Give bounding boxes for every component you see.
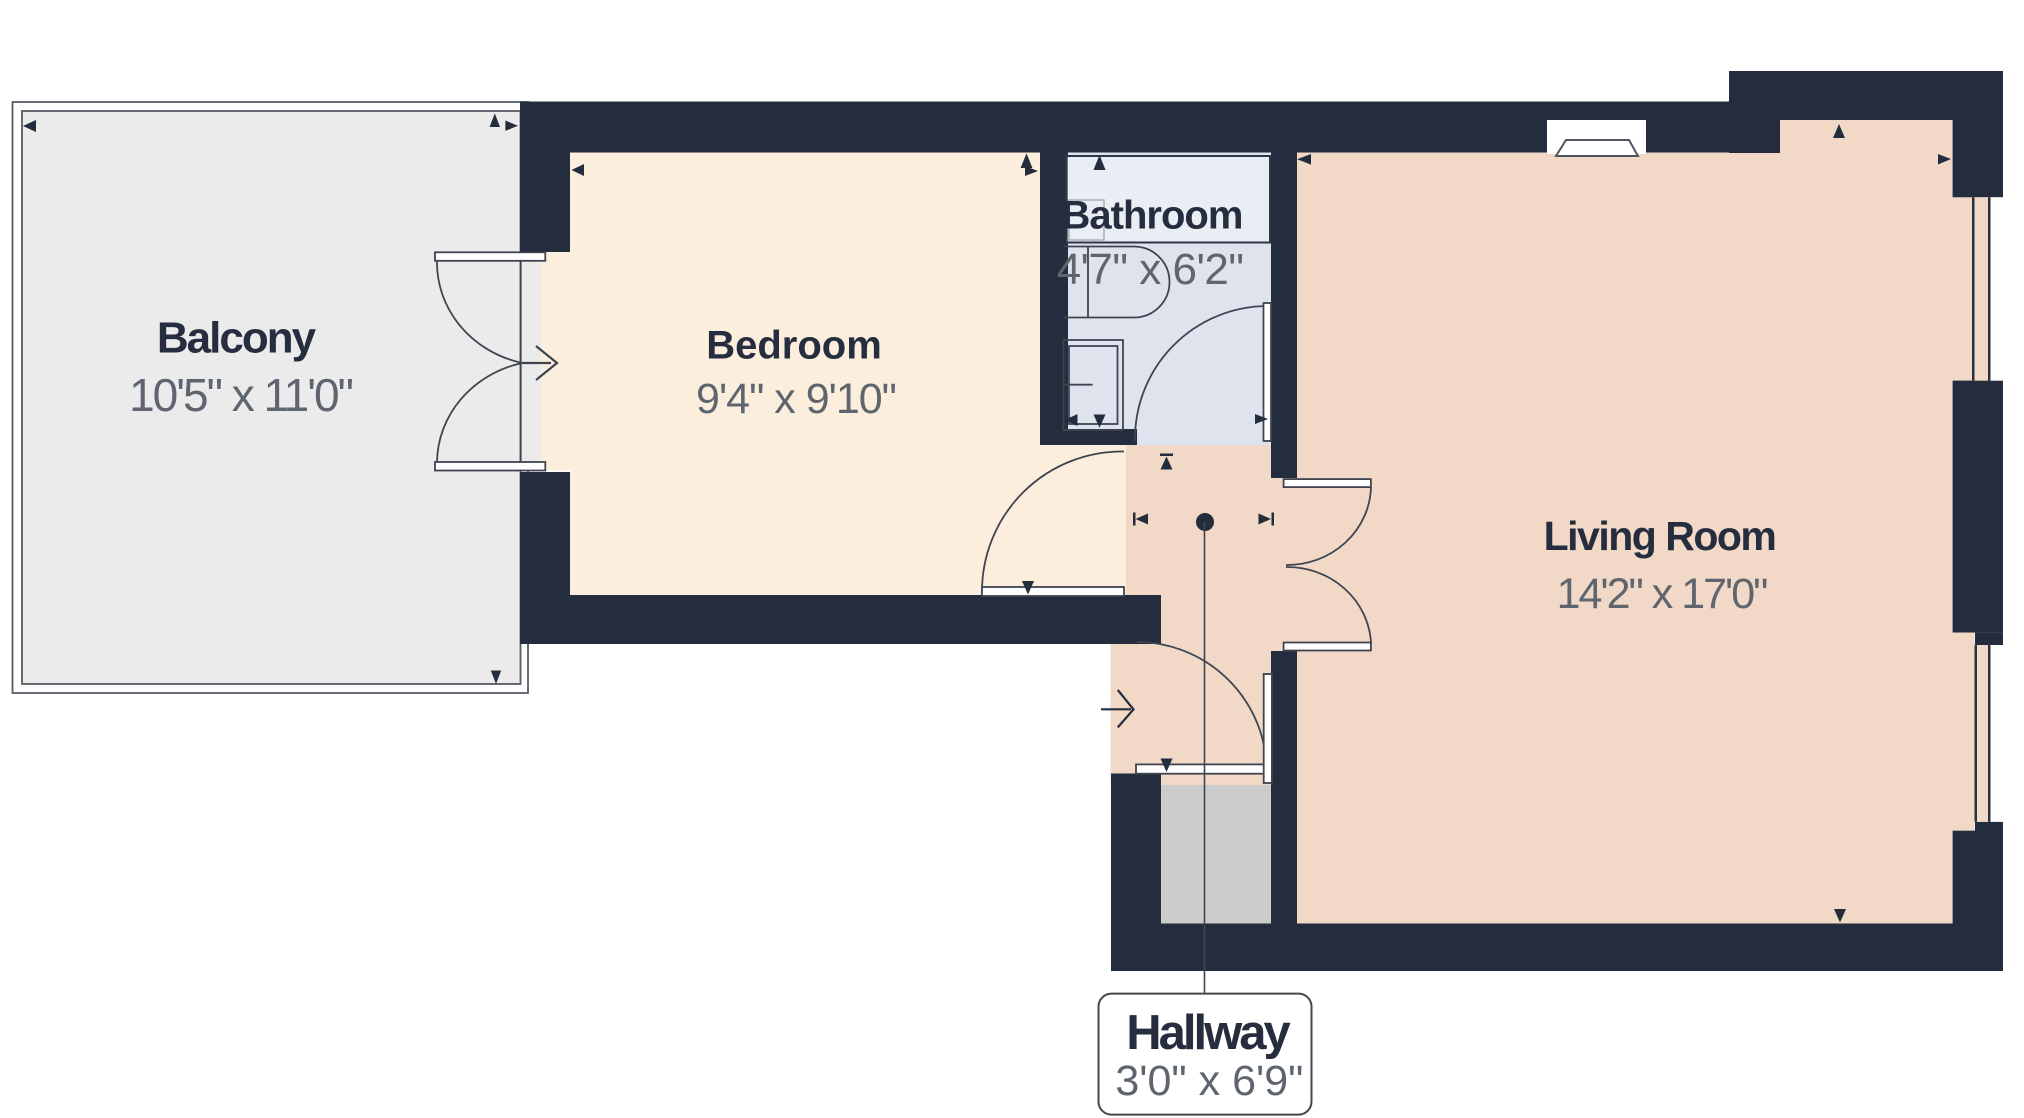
svg-text:Bedroom: Bedroom [706,324,882,368]
svg-text:9'4" x 9'10": 9'4" x 9'10" [696,375,896,423]
svg-text:Bathroom: Bathroom [1062,194,1243,238]
svg-text:Living Room: Living Room [1544,513,1776,559]
svg-text:Balcony: Balcony [157,314,317,363]
svg-text:14'2" x 17'0": 14'2" x 17'0" [1557,570,1768,618]
svg-text:3'0" x 6'9": 3'0" x 6'9" [1115,1057,1303,1105]
svg-text:Hallway: Hallway [1126,1006,1290,1060]
svg-text:10'5" x 11'0": 10'5" x 11'0" [129,369,353,421]
svg-text:4'7" x 6'2": 4'7" x 6'2" [1057,245,1244,294]
